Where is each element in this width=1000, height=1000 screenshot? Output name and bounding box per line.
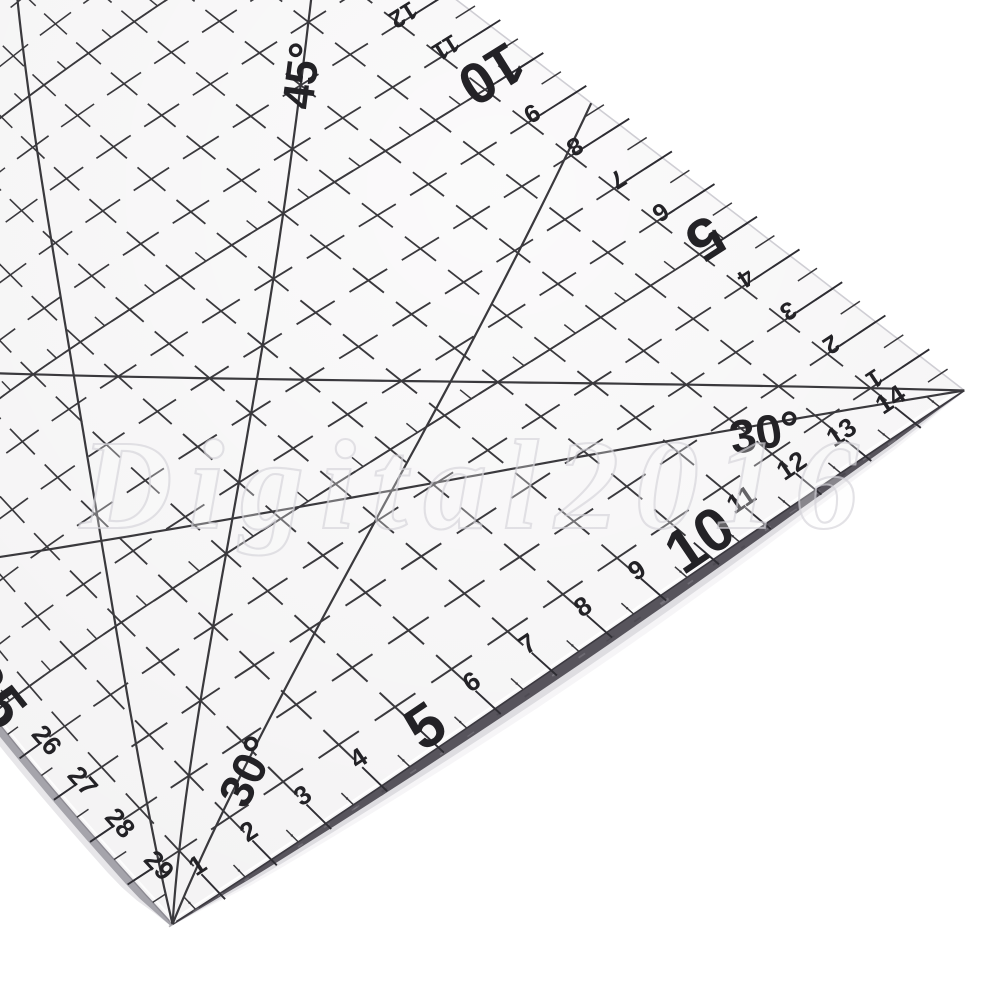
svg-text:Digital2016: Digital2016	[79, 414, 875, 556]
svg-text:45°: 45°	[273, 40, 330, 112]
